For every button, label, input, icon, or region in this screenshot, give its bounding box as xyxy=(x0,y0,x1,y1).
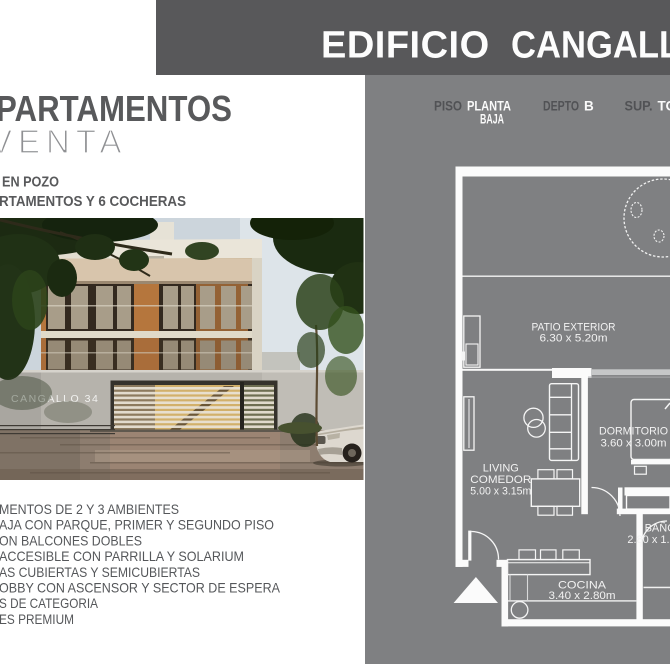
svg-text:3.40 x 2.80m: 3.40 x 2.80m xyxy=(549,590,616,602)
svg-text:2.80 x 1.15m: 2.80 x 1.15m xyxy=(627,534,670,546)
svg-text:DORMITORIO: DORMITORIO xyxy=(599,425,668,437)
svg-text:LIVING: LIVING xyxy=(483,463,519,475)
svg-text:S DE CATEGORIA: S DE CATEGORIA xyxy=(0,595,99,611)
svg-text:BAJA: BAJA xyxy=(480,112,504,127)
svg-text:AS CUBIERTAS Y SEMICUBIERTAS: AS CUBIERTAS Y SEMICUBIERTAS xyxy=(0,564,200,580)
svg-text:MENTOS DE 2 Y 3 AMBIENTES: MENTOS DE 2 Y 3 AMBIENTES xyxy=(0,501,179,517)
svg-text:ON BALCONES DOBLES: ON BALCONES DOBLES xyxy=(0,532,142,548)
svg-text:B: B xyxy=(584,99,594,114)
svg-text:OBBY CON ASCENSOR Y SECTOR DE: OBBY CON ASCENSOR Y SECTOR DE ESPERA xyxy=(0,580,281,596)
svg-text:TOTAL: TOTAL xyxy=(658,99,670,114)
svg-text:AJA CON PARQUE, PRIMER Y SEGUN: AJA CON PARQUE, PRIMER Y SEGUNDO PISO xyxy=(0,517,274,533)
svg-text:VENTA: VENTA xyxy=(0,123,128,160)
svg-text:ES PREMIUM: ES PREMIUM xyxy=(0,611,74,627)
svg-text:3.60 x 3.00m: 3.60 x 3.00m xyxy=(601,437,667,449)
svg-text:RTAMENTOS Y 6 COCHERAS: RTAMENTOS Y 6 COCHERAS xyxy=(0,194,186,210)
svg-text:EDIFICIO: EDIFICIO xyxy=(321,25,490,67)
svg-text:SUP.: SUP. xyxy=(625,99,653,114)
svg-text:5.00 x 3.15m: 5.00 x 3.15m xyxy=(470,486,531,498)
svg-text:6.30 x 5.20m: 6.30 x 5.20m xyxy=(540,332,608,344)
svg-text:CANGALLO: CANGALLO xyxy=(511,25,670,67)
svg-text:EN POZO: EN POZO xyxy=(2,175,59,191)
svg-text:PISO: PISO xyxy=(434,99,462,114)
svg-text:ACCESIBLE CON PARRILLA Y SOLAR: ACCESIBLE CON PARRILLA Y SOLARIUM xyxy=(0,548,244,564)
svg-text:COMEDOR: COMEDOR xyxy=(470,474,531,486)
svg-text:DEPTO: DEPTO xyxy=(543,99,579,114)
